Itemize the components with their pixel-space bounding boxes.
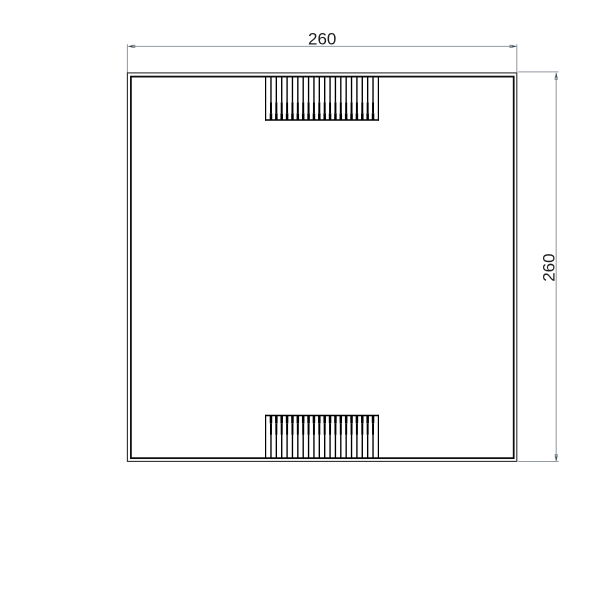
svg-text:260: 260 [539, 253, 558, 281]
svg-text:260: 260 [308, 29, 336, 48]
